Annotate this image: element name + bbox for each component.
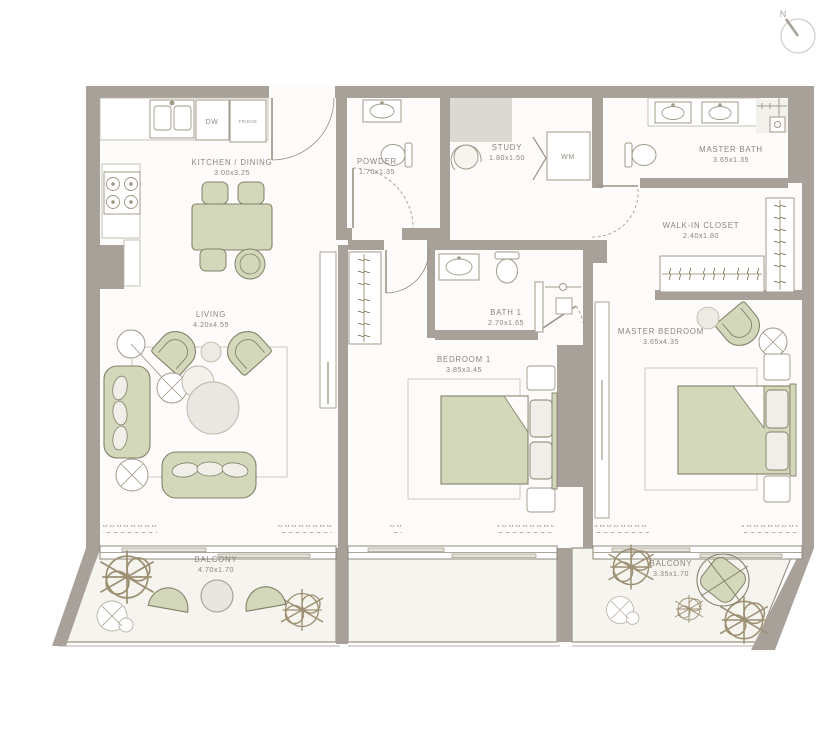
dining-chair-icon	[200, 249, 226, 271]
dining-chair-icon	[238, 182, 264, 204]
room-label-powder: POWDER	[357, 157, 397, 166]
floorplan-page: DW FRIDGE	[0, 0, 839, 740]
wardrobe-icon	[595, 302, 609, 518]
room-dims-living: 4.20x4.55	[193, 320, 229, 329]
room-dims-balcony-left: 4.70x1.70	[198, 565, 234, 574]
side-table-icon	[697, 307, 719, 329]
room-label-master-bath: MASTER BATH	[699, 145, 763, 154]
floorplan-drawing: DW FRIDGE	[0, 0, 839, 740]
pillow	[766, 432, 788, 470]
hanger-rail-icon	[766, 198, 794, 292]
pillow	[530, 442, 552, 479]
nightstand-icon	[527, 488, 555, 512]
headboard	[552, 393, 557, 489]
compass-icon: N	[780, 9, 815, 53]
sofa-icon	[162, 452, 256, 498]
sofa-icon	[104, 366, 150, 458]
desk-chair-icon	[454, 145, 478, 169]
room-label-bedroom1: BEDROOM 1	[437, 355, 491, 364]
nightstand-icon	[527, 366, 555, 390]
side-table-icon	[201, 342, 221, 362]
room-label-bath1: BATH 1	[490, 308, 522, 317]
room-dims-kitchen: 3.00x3.25	[214, 168, 250, 177]
coffee-table-icon	[187, 382, 239, 434]
fridge-icon: FRIDGE	[230, 100, 266, 142]
shower-icon	[756, 98, 788, 133]
laundry-closet: WM	[547, 132, 590, 180]
side-table-icon	[116, 459, 148, 491]
side-table-icon	[759, 328, 787, 356]
room-dims-walk-in-closet: 2.40x1.80	[683, 231, 719, 240]
room-label-balcony-right: BALCONY	[650, 559, 693, 568]
fridge-label: FRIDGE	[239, 119, 257, 124]
room-dims-study: 1.80x1.50	[489, 153, 525, 162]
pillow	[766, 390, 788, 428]
room-label-master-bedroom: MASTER BEDROOM	[618, 327, 704, 336]
room-dims-powder: 1.70x1.35	[359, 167, 395, 176]
room-dims-master-bath: 3.65x1.35	[713, 155, 749, 164]
room-label-balcony-left: BALCONY	[195, 555, 238, 564]
room-dims-bath1: 2.70x1.65	[488, 318, 524, 327]
stove-icon	[104, 172, 140, 214]
window-band	[593, 546, 802, 559]
room-label-kitchen: KITCHEN / DINING	[192, 158, 273, 167]
room-dims-bedroom1: 3.85x3.45	[446, 365, 482, 374]
sink-icon	[363, 100, 401, 122]
nightstand-icon	[764, 354, 790, 380]
wardrobe-icon	[349, 252, 381, 344]
balcony-table-icon	[201, 580, 233, 612]
sink-icon	[150, 100, 194, 138]
dining-chair-icon	[202, 182, 228, 204]
room-dims-master-bedroom: 3.65x4.35	[643, 337, 679, 346]
tv-console	[320, 252, 336, 408]
room-dims-balcony-right: 3.35x1.70	[653, 569, 689, 578]
pillow	[530, 400, 552, 437]
room-label-study: STUDY	[492, 143, 522, 152]
dishwasher-label: DW	[206, 119, 219, 126]
dining-stool-icon	[235, 249, 265, 279]
service-shaft	[450, 98, 512, 142]
sink-icon	[439, 254, 479, 280]
headboard	[790, 384, 796, 476]
nightstand-icon	[764, 476, 790, 502]
dishwasher-icon: DW	[196, 100, 229, 140]
balcony-mid-floor	[348, 548, 557, 642]
powder-door-opening	[352, 228, 402, 240]
compass-north-label: N	[780, 9, 787, 19]
sink-icon	[655, 102, 691, 123]
lounge-chair-icon	[697, 554, 749, 606]
window-band	[348, 546, 557, 559]
dining-table-icon	[192, 204, 272, 250]
room-label-walk-in-closet: WALK-IN CLOSET	[663, 221, 740, 230]
washer-label: WM	[561, 154, 575, 161]
entry-opening	[269, 86, 335, 98]
hanger-rail-icon	[660, 256, 764, 292]
sink-icon	[702, 102, 738, 123]
kitchen-cabinet	[124, 240, 140, 286]
room-label-living: LIVING	[196, 310, 226, 319]
